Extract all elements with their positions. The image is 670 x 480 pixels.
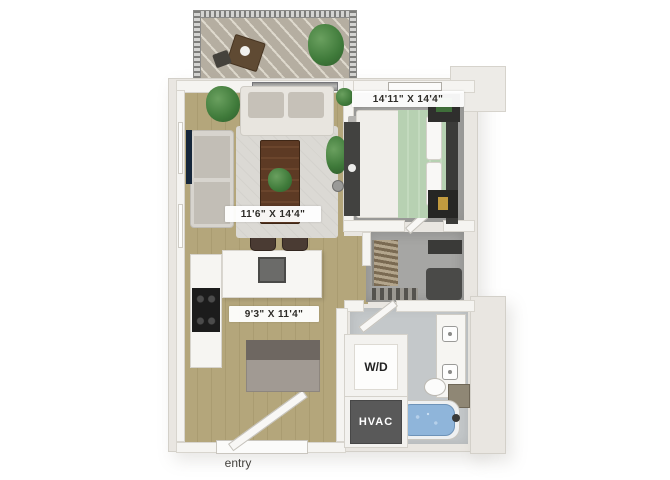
closet-hanging-clothes xyxy=(372,240,398,286)
kitchen-dimensions-label: 9'3" X 11'4" xyxy=(229,306,319,322)
left-window-2 xyxy=(178,204,183,248)
kitchen-lower-cabinet-top xyxy=(246,340,320,360)
bedroom-window xyxy=(388,82,442,91)
coffee-table-plant xyxy=(268,168,292,192)
balcony-railing-top xyxy=(193,10,357,18)
bedroom-dimensions-label: 14'11" X 14'4" xyxy=(352,91,464,107)
balcony-railing-right xyxy=(349,10,357,84)
dresser-decor xyxy=(348,164,356,172)
sofa-cushion xyxy=(248,92,284,118)
sofa-cushion xyxy=(288,92,324,118)
living-room-dimensions-label: 11'6" X 14'4" xyxy=(225,206,321,222)
hvac-label: HVAC xyxy=(350,400,402,444)
nightstand-decor xyxy=(438,197,448,210)
left-window-1 xyxy=(178,122,183,174)
building-shell-bathroom-wing xyxy=(470,296,506,454)
closet-shelf xyxy=(428,240,462,254)
washer-dryer-label: W/D xyxy=(354,344,398,390)
bathtub-water xyxy=(401,404,455,436)
wall-bathroom-top-right xyxy=(396,300,475,312)
wall-tv xyxy=(186,130,192,184)
floor-lamp xyxy=(332,180,344,192)
balcony-plant xyxy=(308,24,344,66)
cooktop xyxy=(192,288,220,332)
entry-label: entry xyxy=(208,455,268,471)
bed-pillow xyxy=(426,116,442,160)
bathtub-faucet xyxy=(452,414,460,422)
patio-table-plate xyxy=(240,46,250,56)
balcony-railing-left xyxy=(193,10,201,84)
closet-storage xyxy=(426,268,462,300)
wall-closet-stub xyxy=(362,232,371,266)
vanity-sink-2 xyxy=(442,364,458,380)
kitchen-sink xyxy=(258,257,286,283)
sofa-side-cushion xyxy=(194,136,230,178)
living-room-plant-1 xyxy=(206,86,240,122)
wall-bedroom-bottom-left xyxy=(343,220,405,232)
floorplan-canvas: W/D HVAC 14'11" X 14'4" 11'6" X 14'4" 9'… xyxy=(0,0,670,480)
toilet xyxy=(424,378,446,396)
vanity-sink-1 xyxy=(442,326,458,342)
closet-shoe-shelf xyxy=(372,288,418,300)
